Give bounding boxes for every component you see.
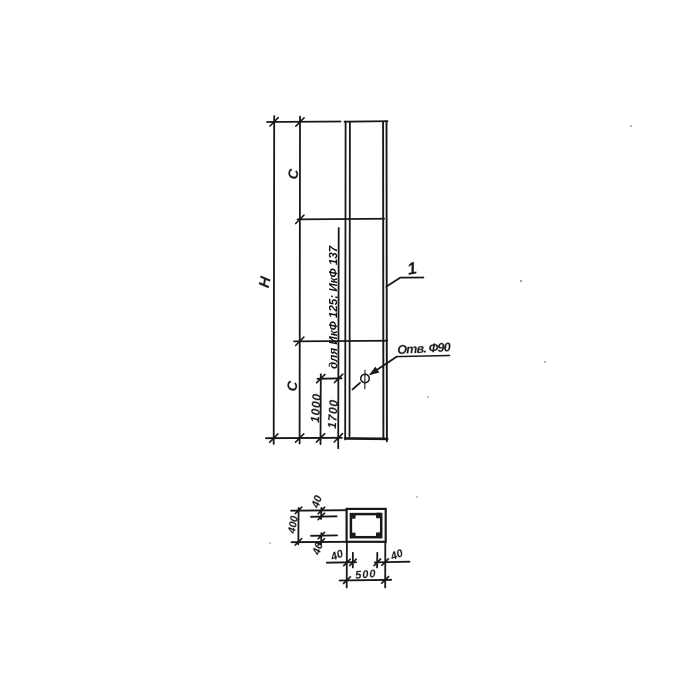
- svg-text:Н: Н: [256, 274, 275, 289]
- svg-text:С: С: [283, 379, 301, 393]
- svg-text:40: 40: [309, 493, 325, 510]
- svg-text:1: 1: [406, 258, 419, 278]
- svg-text:для ИкФ 125; ИкФ 137: для ИкФ 125; ИкФ 137: [327, 245, 340, 369]
- svg-text:500: 500: [355, 568, 377, 582]
- svg-text:Отв. Ф90: Отв. Ф90: [397, 340, 451, 357]
- svg-text:1700: 1700: [325, 399, 341, 429]
- svg-text:1000: 1000: [308, 393, 324, 423]
- svg-text:40: 40: [328, 548, 346, 564]
